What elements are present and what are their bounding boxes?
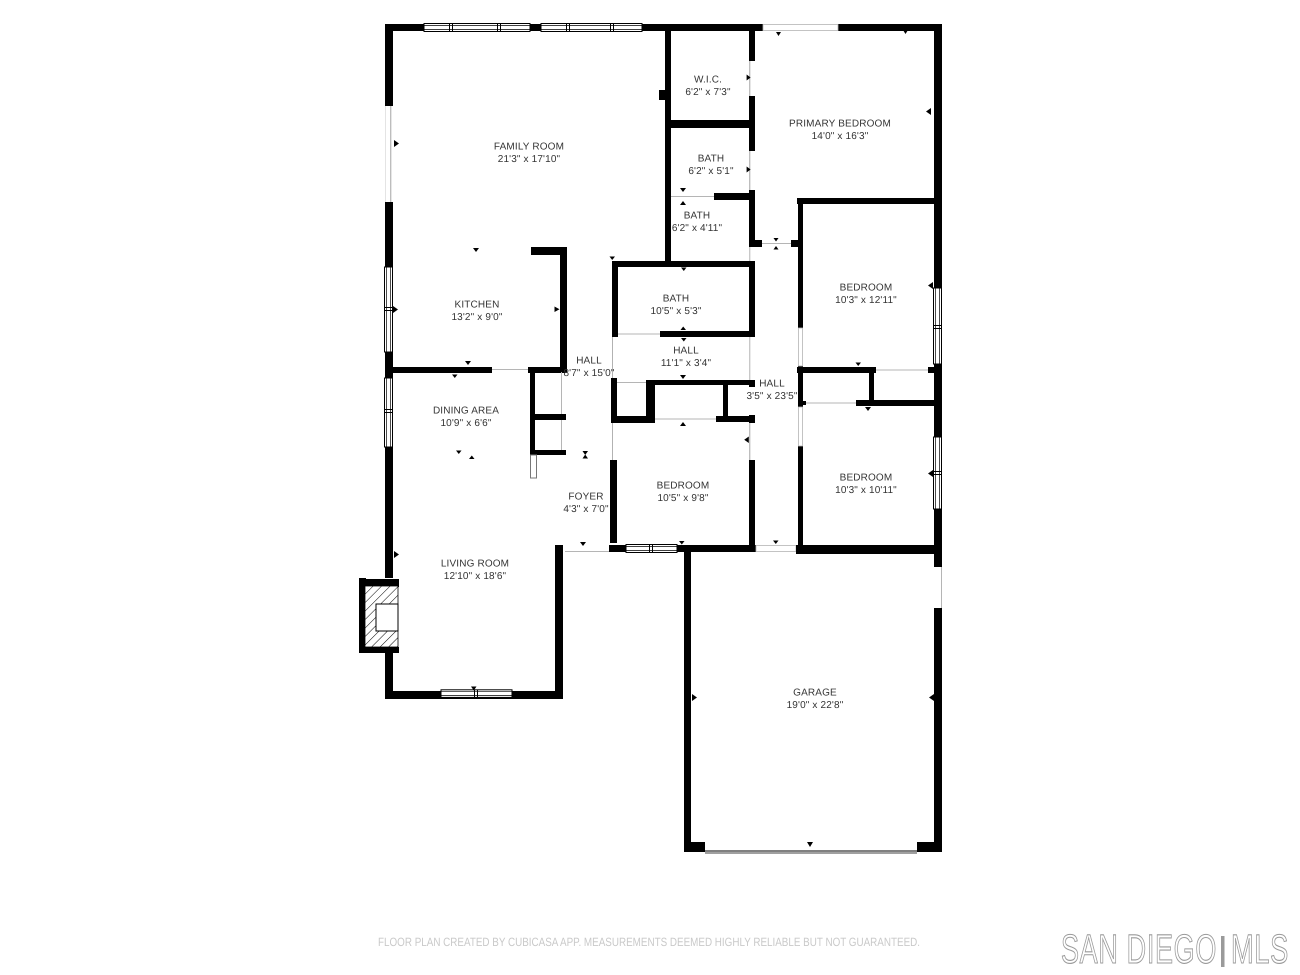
svg-text:4'3" x 7'0": 4'3" x 7'0"	[563, 504, 609, 515]
svg-text:12'10" x 18'6": 12'10" x 18'6"	[444, 571, 507, 582]
svg-text:10'5" x 5'3": 10'5" x 5'3"	[650, 306, 701, 317]
svg-text:8'7" x 15'0": 8'7" x 15'0"	[563, 368, 614, 379]
svg-text:MLS: MLS	[1231, 926, 1289, 972]
svg-text:6'2" x 7'3": 6'2" x 7'3"	[685, 87, 731, 98]
svg-text:W.I.C.: W.I.C.	[694, 75, 722, 86]
svg-text:LIVING ROOM: LIVING ROOM	[441, 559, 509, 570]
svg-text:GARAGE: GARAGE	[793, 688, 837, 699]
svg-text:BATH: BATH	[684, 211, 711, 222]
svg-text:BATH: BATH	[698, 154, 725, 165]
svg-text:6'2" x 5'1": 6'2" x 5'1"	[688, 166, 734, 177]
svg-text:BEDROOM: BEDROOM	[840, 283, 893, 294]
svg-text:HALL: HALL	[759, 379, 785, 390]
svg-text:DINING AREA: DINING AREA	[433, 406, 499, 417]
svg-text:10'3" x 12'11": 10'3" x 12'11"	[835, 295, 897, 306]
svg-text:19'0" x 22'8": 19'0" x 22'8"	[787, 700, 844, 711]
svg-text:14'0" x 16'3": 14'0" x 16'3"	[812, 131, 869, 142]
svg-text:13'2" x 9'0": 13'2" x 9'0"	[451, 312, 502, 323]
svg-text:6'2" x 4'11": 6'2" x 4'11"	[672, 223, 723, 234]
svg-text:3'5" x 23'5": 3'5" x 23'5"	[746, 391, 797, 402]
svg-text:10'3" x 10'11": 10'3" x 10'11"	[835, 485, 897, 496]
svg-text:BATH: BATH	[663, 294, 690, 305]
svg-text:BEDROOM: BEDROOM	[840, 473, 893, 484]
svg-text:SAN DIEGO: SAN DIEGO	[1061, 926, 1217, 972]
svg-text:BEDROOM: BEDROOM	[657, 481, 710, 492]
svg-text:FOYER: FOYER	[568, 492, 603, 503]
svg-text:FAMILY ROOM: FAMILY ROOM	[494, 142, 564, 153]
svg-text:21'3" x 17'10": 21'3" x 17'10"	[498, 154, 561, 165]
svg-text:PRIMARY BEDROOM: PRIMARY BEDROOM	[789, 119, 891, 130]
svg-text:HALL: HALL	[673, 346, 699, 357]
svg-text:10'5" x 9'8": 10'5" x 9'8"	[657, 493, 708, 504]
svg-text:KITCHEN: KITCHEN	[455, 300, 500, 311]
svg-text:HALL: HALL	[576, 356, 602, 367]
svg-text:10'9" x 6'6": 10'9" x 6'6"	[440, 418, 491, 429]
svg-text:FLOOR PLAN CREATED BY CUBICASA: FLOOR PLAN CREATED BY CUBICASA APP. MEAS…	[378, 935, 920, 949]
svg-text:11'1" x 3'4": 11'1" x 3'4"	[661, 358, 712, 369]
